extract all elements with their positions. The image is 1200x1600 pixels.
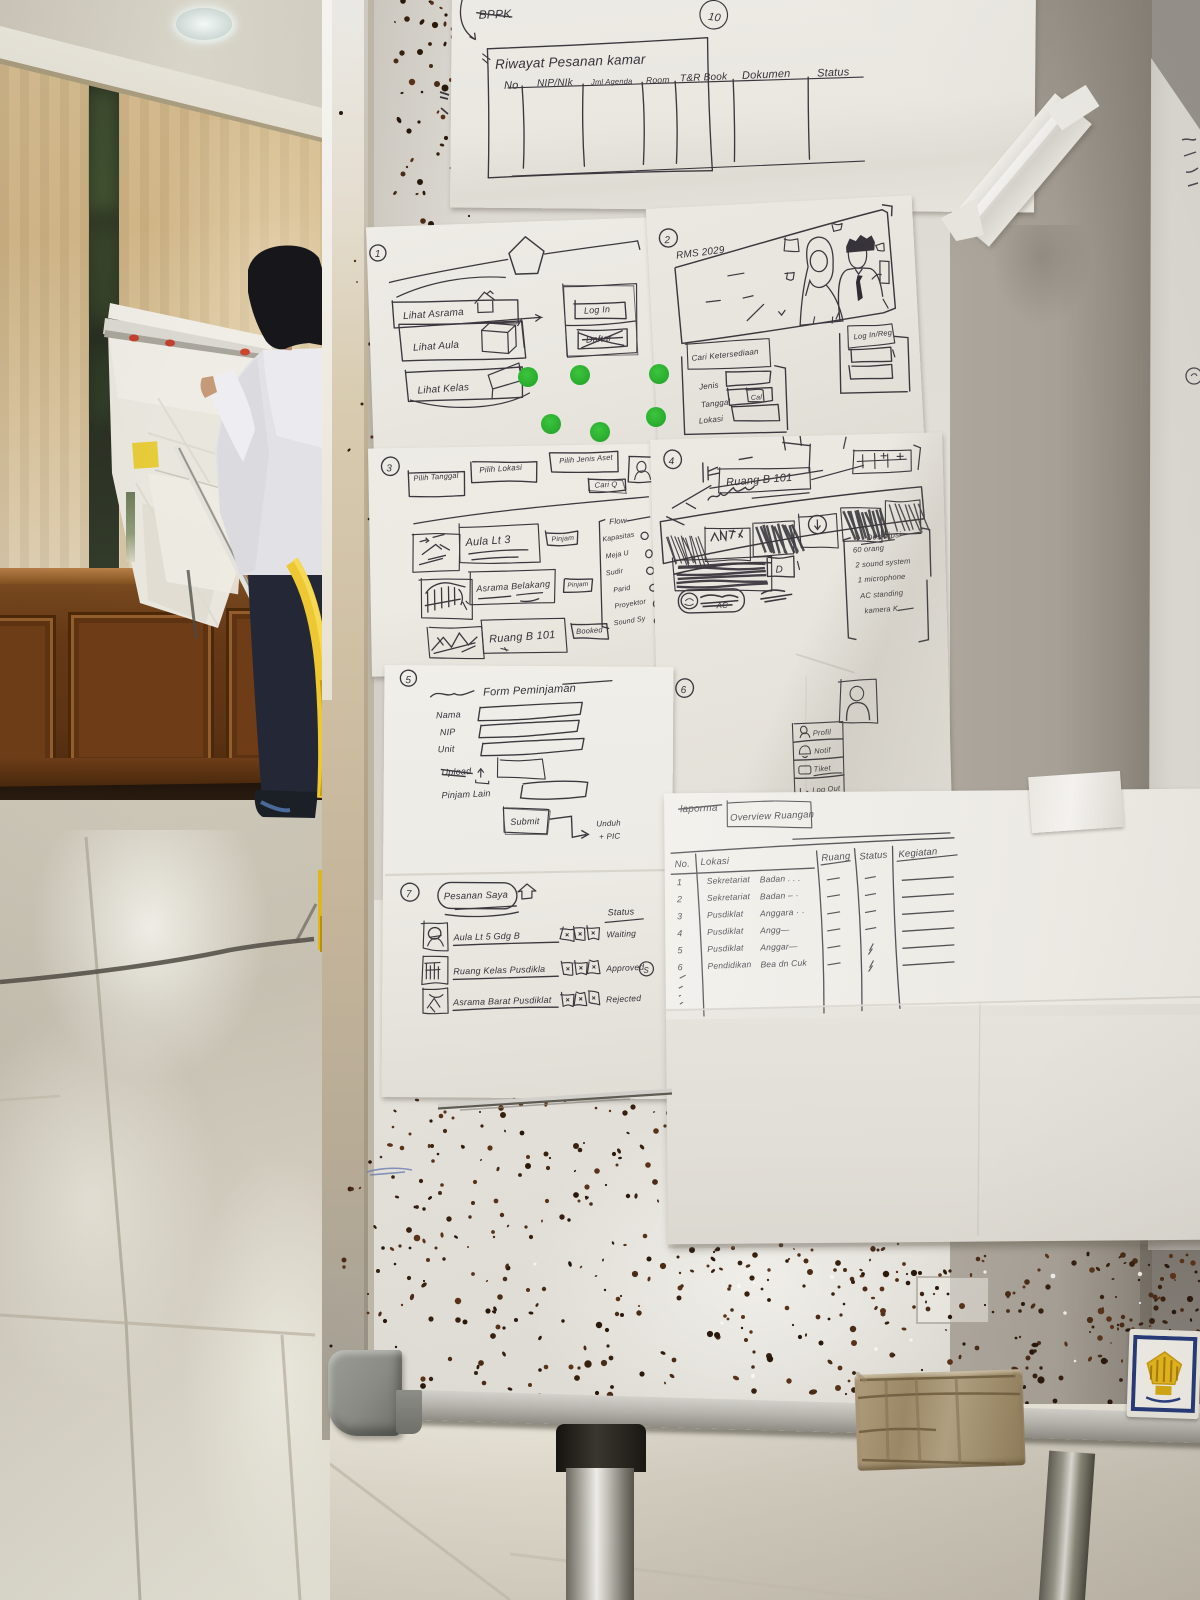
svg-text:Tanggal: Tanggal: [701, 397, 731, 409]
svg-text:Cal: Cal: [751, 394, 763, 402]
svg-text:Kapasitas: Kapasitas: [602, 531, 636, 543]
svg-text:Status: Status: [817, 66, 850, 79]
svg-text:NIP: NIP: [440, 727, 456, 738]
svg-text:Proyektor: Proyektor: [614, 598, 647, 610]
svg-text:Lihat Asrama: Lihat Asrama: [403, 307, 465, 322]
svg-text:Sound Sy: Sound Sy: [613, 615, 646, 627]
svg-text:Status: Status: [607, 906, 634, 917]
svg-text:Aula Lt 5 Gdg B: Aula Lt 5 Gdg B: [452, 931, 520, 943]
svg-text:Cari Q: Cari Q: [594, 480, 617, 490]
svg-text:Jml Agenda: Jml Agenda: [590, 77, 633, 87]
svg-text:Form Peminjaman: Form Peminjaman: [483, 682, 576, 698]
svg-text:Ruang B 101: Ruang B 101: [489, 629, 556, 646]
svg-text:7: 7: [406, 889, 412, 900]
svg-text:Unduh: Unduh: [596, 818, 621, 828]
svg-text:Nama: Nama: [436, 709, 461, 720]
svg-text:No: No: [504, 80, 519, 92]
svg-text:Ruang Kelas Pusdikla: Ruang Kelas Pusdikla: [453, 964, 545, 977]
svg-text:Pinjam: Pinjam: [567, 581, 589, 589]
svg-text:Lokasi: Lokasi: [698, 414, 723, 425]
svg-text:3: 3: [386, 463, 392, 474]
svg-text:NIP/NIk: NIP/NIk: [537, 77, 574, 89]
svg-text:Lihat Kelas: Lihat Kelas: [417, 382, 469, 397]
svg-text:Rejected: Rejected: [606, 993, 642, 1005]
svg-text:RMS 2029: RMS 2029: [676, 245, 726, 262]
svg-text:Log In: Log In: [584, 304, 611, 316]
svg-text:Parid: Parid: [613, 585, 632, 595]
svg-text:10: 10: [707, 11, 722, 25]
svg-text:Pilih Tanggal: Pilih Tanggal: [413, 471, 459, 483]
svg-text:Riwayat Pesanan kamar: Riwayat Pesanan kamar: [495, 52, 646, 72]
svg-text:Pinjam: Pinjam: [551, 535, 574, 544]
svg-text:Cari Ketersediaan: Cari Ketersediaan: [691, 347, 759, 363]
svg-text:Asrama Belakang: Asrama Belakang: [475, 579, 551, 594]
svg-text:1: 1: [375, 249, 381, 260]
svg-text:Lihat Aula: Lihat Aula: [413, 340, 460, 354]
svg-text:Dokumen: Dokumen: [742, 68, 791, 82]
svg-text:Unit: Unit: [438, 744, 456, 755]
svg-text:Pinjam Lain: Pinjam Lain: [441, 788, 491, 800]
svg-text:Pilih Lokasi: Pilih Lokasi: [479, 463, 522, 475]
svg-text:Jenis: Jenis: [698, 381, 720, 392]
svg-text:Asrama Barat Pusdiklat: Asrama Barat Pusdiklat: [452, 995, 552, 1008]
svg-text:S: S: [643, 966, 649, 975]
svg-text:Booked: Booked: [576, 625, 604, 636]
svg-text:Room: Room: [646, 75, 670, 86]
svg-text:Sudir: Sudir: [606, 568, 625, 578]
svg-text:2: 2: [663, 235, 671, 246]
svg-text:Pesanan Saya: Pesanan Saya: [444, 890, 508, 903]
svg-text:Flow: Flow: [609, 516, 628, 527]
svg-text:T&R Book: T&R Book: [680, 71, 728, 84]
svg-text:5: 5: [405, 675, 411, 686]
svg-text:Meja U: Meja U: [605, 550, 630, 561]
svg-text:Log In/Reg: Log In/Reg: [853, 328, 893, 342]
svg-text:Pilih Jenis Aset: Pilih Jenis Aset: [559, 453, 614, 466]
svg-text:Submit: Submit: [510, 816, 540, 827]
svg-text:+ PIC: + PIC: [599, 832, 621, 842]
svg-text:Waiting: Waiting: [606, 928, 636, 939]
svg-text:Approved: Approved: [605, 962, 644, 974]
svg-text:Aula Lt 3: Aula Lt 3: [464, 534, 512, 549]
